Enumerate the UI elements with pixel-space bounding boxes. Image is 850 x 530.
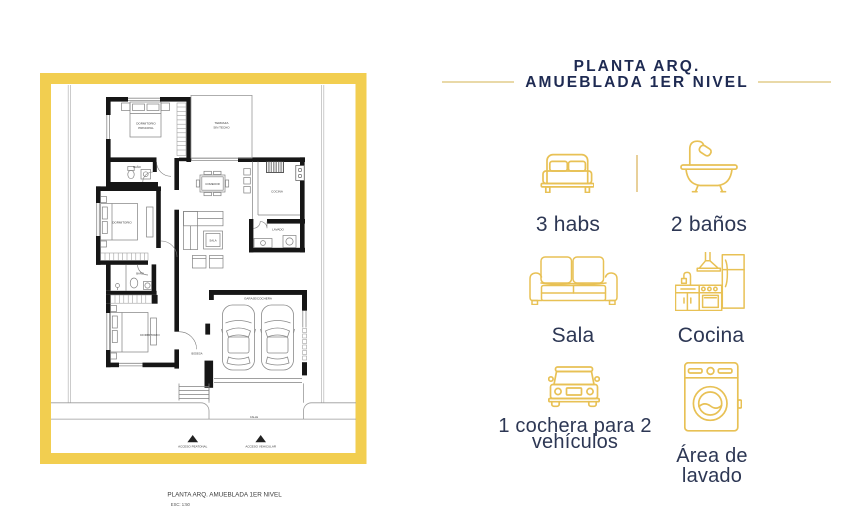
svg-text:ESC: 1:50: ESC: 1:50	[171, 502, 191, 507]
svg-text:CALLE: CALLE	[250, 415, 258, 419]
svg-text:TERRAZA: TERRAZA	[214, 121, 228, 125]
svg-text:COCINA: COCINA	[271, 190, 283, 194]
svg-text:GARAJE/COCHERA: GARAJE/COCHERA	[244, 297, 272, 301]
svg-text:DORMITORIO: DORMITORIO	[136, 122, 156, 126]
svg-text:DORMITORIO: DORMITORIO	[140, 333, 160, 337]
svg-text:ACCESO PEATONAL: ACCESO PEATONAL	[178, 445, 208, 449]
svg-text:PLANTA ARQ. AMUEBLADA 1ER NIVE: PLANTA ARQ. AMUEBLADA 1ER NIVEL	[167, 492, 282, 499]
svg-text:SALA: SALA	[209, 239, 216, 243]
svg-text:LAVADO: LAVADO	[272, 228, 284, 232]
svg-text:BODEGA: BODEGA	[191, 352, 202, 356]
svg-text:SIN TECHO: SIN TECHO	[213, 126, 230, 130]
svg-text:COMEDOR: COMEDOR	[205, 182, 220, 186]
svg-text:PRINCIPAL: PRINCIPAL	[138, 126, 154, 130]
svg-text:DORMITORIO: DORMITORIO	[112, 221, 132, 225]
svg-text:ACCESO VEHICULAR: ACCESO VEHICULAR	[245, 445, 277, 449]
